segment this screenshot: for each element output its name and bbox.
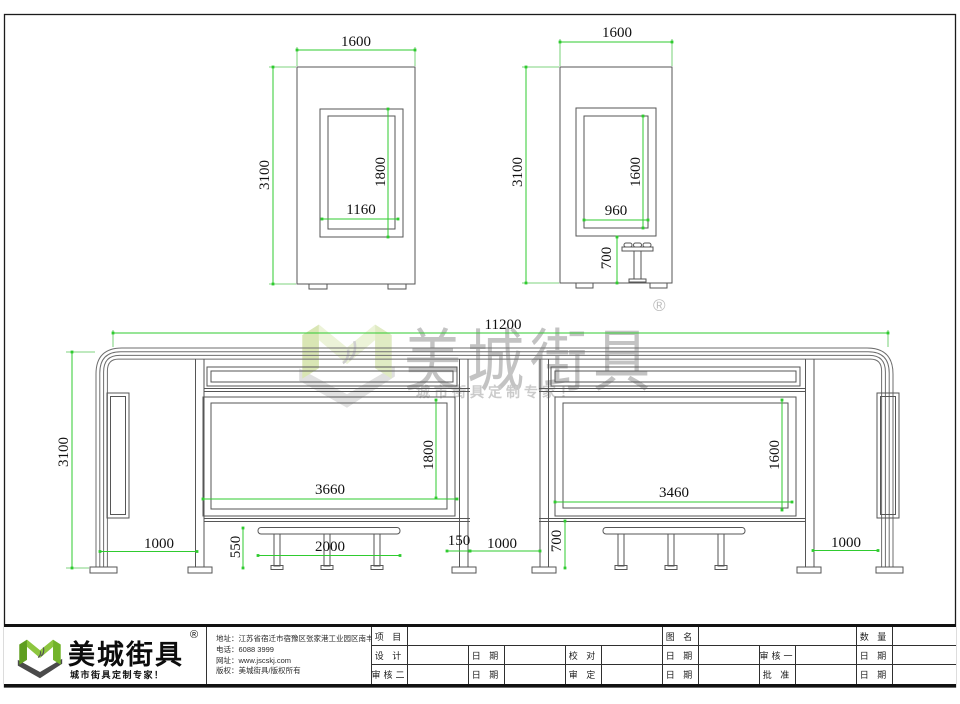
value-date bbox=[505, 646, 566, 665]
dim-tr-inner-width: 960 bbox=[605, 203, 628, 219]
titleblock-table: 项 目 图 名 数 量 设 计 日 期 校 对 日 期 审核一 日 期 审核二 … bbox=[372, 627, 956, 684]
dim-tr-seat-height: 700 bbox=[599, 247, 615, 270]
registered-trademark-icon: ® bbox=[190, 629, 198, 641]
value-ratify bbox=[796, 665, 857, 684]
cad-sheet: { "views": { "top_left": { "width": "160… bbox=[0, 0, 960, 704]
label-proofread: 校 对 bbox=[566, 646, 602, 665]
company-slogan: 城市街具定制专家！ bbox=[70, 668, 165, 681]
label-date: 日 期 bbox=[857, 665, 893, 684]
label-review2: 审核二 bbox=[372, 665, 408, 684]
value-drawing-name bbox=[699, 627, 857, 646]
company-logo-cell: 美城街具 ® 城市街具定制专家！ bbox=[4, 627, 207, 684]
left-bench bbox=[258, 528, 400, 535]
value-date bbox=[699, 646, 760, 665]
sheet-frame bbox=[5, 15, 956, 688]
label-date: 日 期 bbox=[469, 646, 505, 665]
title-block: 美城街具 ® 城市街具定制专家！ 地址：江苏省宿迁市宿豫区张家港工业园区南丰路西… bbox=[4, 624, 956, 687]
right-header-band bbox=[551, 367, 800, 386]
label-drawing-name: 图 名 bbox=[663, 627, 699, 646]
company-contact-info: 地址：江苏省宿迁市宿豫区张家港工业园区南丰路西侧1号 电话：6088 3999 … bbox=[207, 627, 372, 684]
dim-right-panel-height: 1600 bbox=[767, 440, 783, 470]
top-right-end-view bbox=[560, 67, 672, 288]
company-logo-icon bbox=[15, 630, 65, 684]
label-ratify: 批 准 bbox=[760, 665, 796, 684]
value-review1 bbox=[796, 646, 857, 665]
dim-left-panel-width: 3660 bbox=[315, 482, 345, 498]
bench-end-seat bbox=[622, 247, 653, 251]
dim-right-panel-width: 3460 bbox=[659, 485, 689, 501]
dim-right-bay: 1000 bbox=[831, 535, 861, 551]
value-project bbox=[408, 627, 663, 646]
dim-bench-height: 550 bbox=[228, 536, 244, 559]
value-date bbox=[893, 665, 956, 684]
label-design: 设 计 bbox=[372, 646, 408, 665]
dim-tl-inner-width: 1160 bbox=[346, 202, 375, 218]
drawing-canvas: 1600 3100 1800 1160 1600 3100 1600 9 bbox=[0, 0, 960, 704]
dim-main-height: 3100 bbox=[56, 437, 72, 467]
label-date: 日 期 bbox=[663, 646, 699, 665]
company-copyright: 版权：美城街具/版权所有 bbox=[216, 666, 371, 677]
top-left-end-view bbox=[297, 67, 415, 289]
top-left-dimensions: 1600 3100 1800 1160 bbox=[257, 34, 415, 284]
dim-center-bay: 1000 bbox=[487, 536, 517, 552]
dim-board-bottom-height: 700 bbox=[549, 530, 565, 553]
company-address: 地址：江苏省宿迁市宿豫区张家港工业园区南丰路西侧1号 bbox=[216, 634, 371, 645]
label-review1: 审核一 bbox=[760, 646, 796, 665]
left-header-band bbox=[207, 367, 457, 386]
company-brand-text: 美城街具 bbox=[68, 633, 184, 672]
dim-tl-inner-height: 1800 bbox=[373, 157, 389, 187]
label-approve: 审 定 bbox=[566, 665, 602, 684]
dim-bench-length: 2000 bbox=[315, 539, 345, 555]
value-date bbox=[505, 665, 566, 684]
value-proofread bbox=[602, 646, 663, 665]
company-website: 网址：www.jscskj.com bbox=[216, 656, 371, 667]
value-review2 bbox=[408, 665, 469, 684]
left-ad-panel bbox=[203, 397, 455, 516]
right-bench bbox=[603, 528, 745, 535]
value-date bbox=[699, 665, 760, 684]
label-date: 日 期 bbox=[857, 646, 893, 665]
dim-left-bay: 1000 bbox=[144, 536, 174, 552]
dim-tr-inner-height: 1600 bbox=[628, 157, 644, 187]
dim-tl-height: 3100 bbox=[257, 160, 273, 190]
value-date bbox=[893, 646, 956, 665]
value-quantity bbox=[893, 627, 956, 646]
label-quantity: 数 量 bbox=[857, 627, 893, 646]
dim-tr-width: 1600 bbox=[602, 25, 632, 41]
company-phone: 电话：6088 3999 bbox=[216, 645, 371, 656]
dim-total-width: 11200 bbox=[485, 317, 522, 333]
dim-panel-gap: 150 bbox=[448, 533, 471, 549]
value-design bbox=[408, 646, 469, 665]
label-date: 日 期 bbox=[663, 665, 699, 684]
dim-left-panel-height: 1800 bbox=[421, 440, 437, 470]
dim-tl-width: 1600 bbox=[341, 34, 371, 50]
dim-tr-height: 3100 bbox=[510, 157, 526, 187]
main-dimensions: 11200 3100 3660 1800 3460 1600 1000 550 … bbox=[56, 317, 888, 568]
value-approve bbox=[602, 665, 663, 684]
label-date: 日 期 bbox=[469, 665, 505, 684]
label-project: 项 目 bbox=[372, 627, 408, 646]
